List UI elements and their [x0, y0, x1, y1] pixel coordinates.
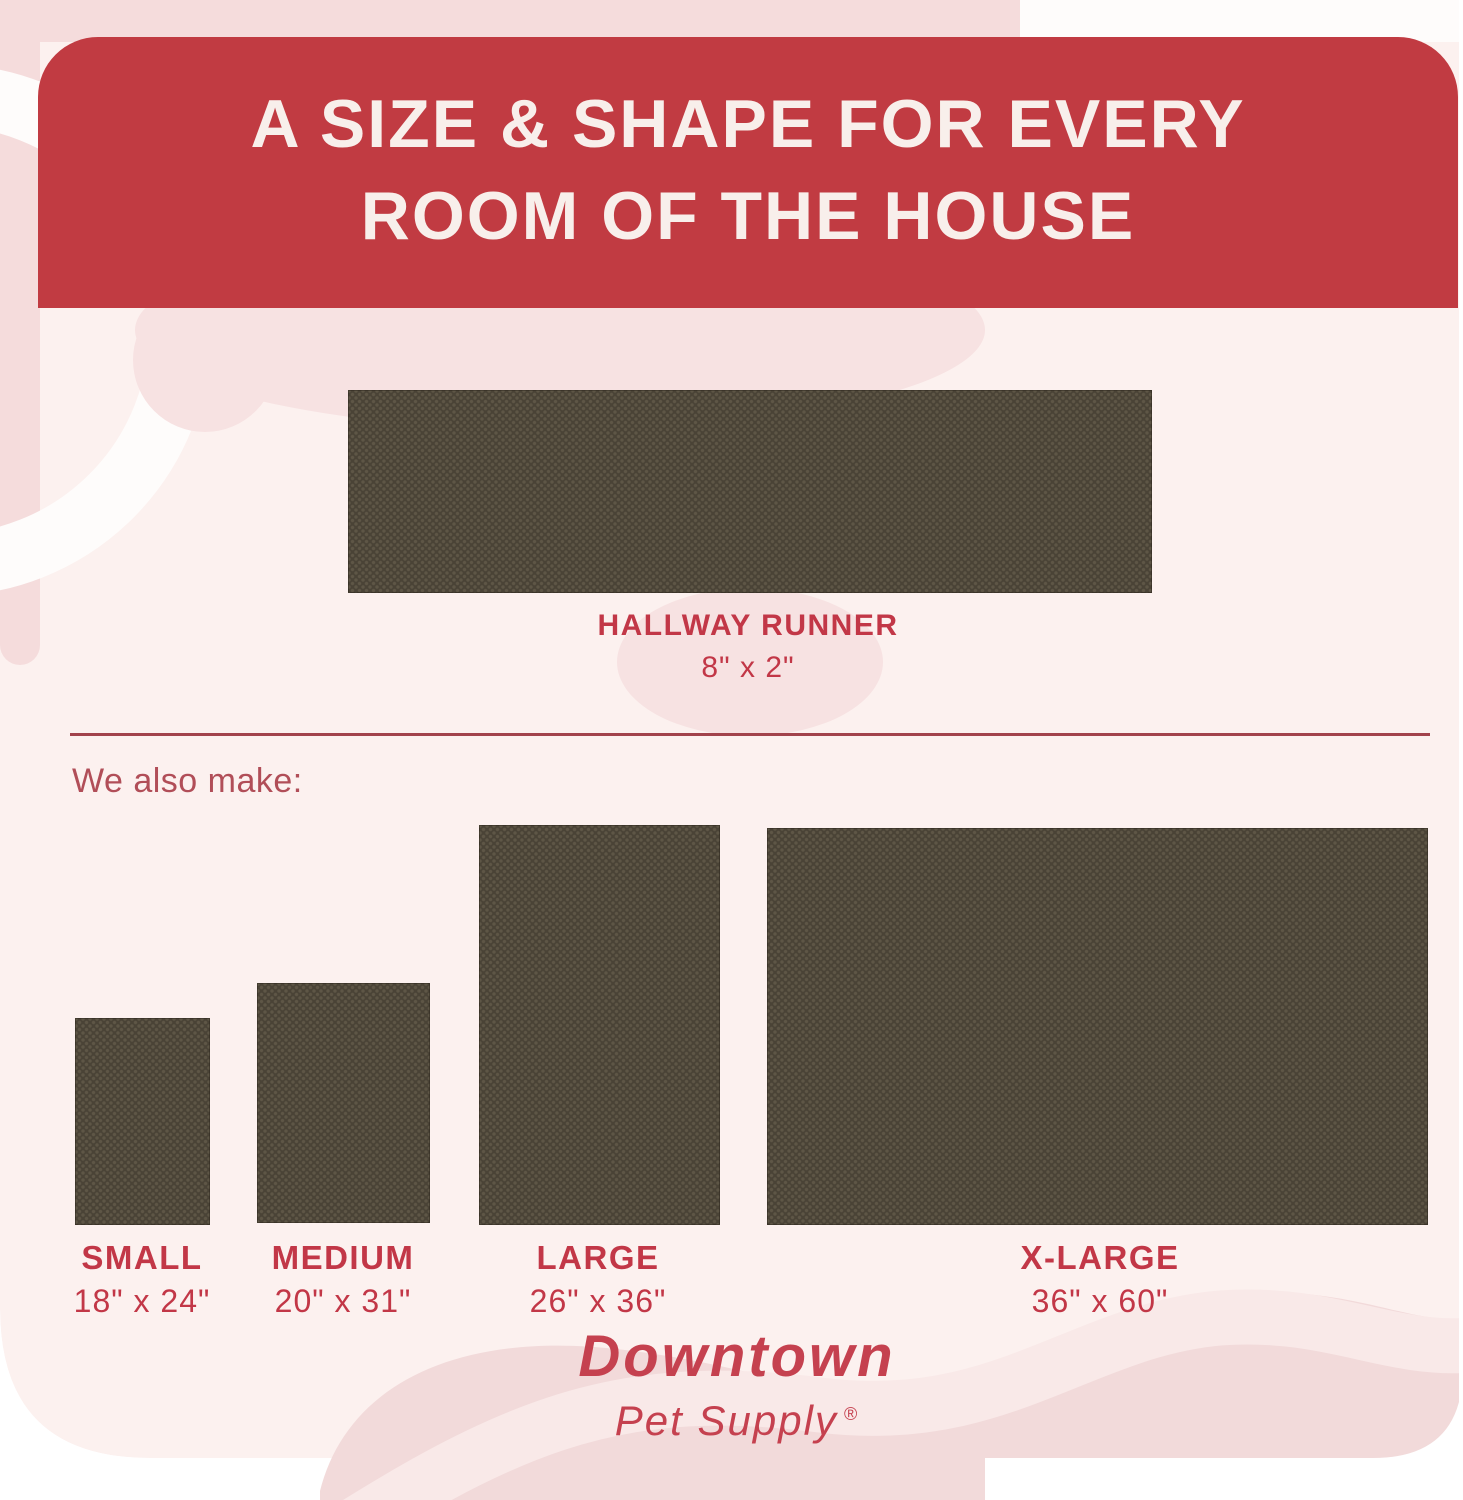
- xlarge-mat-swatch: [767, 828, 1428, 1225]
- registered-trademark-symbol: ®: [844, 1404, 859, 1424]
- size-label-xlarge: X-LARGE 36" x 60": [988, 1238, 1212, 1321]
- size-name-medium: MEDIUM: [231, 1238, 455, 1278]
- header-banner: A SIZE & SHAPE FOR EVERY ROOM OF THE HOU…: [38, 37, 1458, 308]
- size-name-large: LARGE: [486, 1238, 710, 1278]
- brand-logo: Downtown Pet Supply®: [437, 1326, 1037, 1445]
- size-dimensions-xlarge: 36" x 60": [988, 1281, 1212, 1321]
- runner-mat-swatch: [348, 390, 1152, 593]
- small-mat-swatch: [75, 1018, 210, 1225]
- size-dimensions-large: 26" x 36": [486, 1281, 710, 1321]
- brand-tagline-text: Pet Supply: [615, 1397, 838, 1444]
- size-dimensions-medium: 20" x 31": [231, 1281, 455, 1321]
- header-title-line1: A SIZE & SHAPE FOR EVERY: [250, 78, 1245, 170]
- size-dimensions-small: 18" x 24": [30, 1281, 254, 1321]
- header-title: A SIZE & SHAPE FOR EVERY ROOM OF THE HOU…: [250, 78, 1245, 262]
- size-label-small: SMALL 18" x 24": [30, 1238, 254, 1321]
- divider-line: [70, 733, 1430, 736]
- large-mat-swatch: [479, 825, 720, 1225]
- runner-dimensions: 8" x 2": [548, 648, 948, 688]
- brand-name: Downtown: [437, 1326, 1037, 1388]
- size-label-medium: MEDIUM 20" x 31": [231, 1238, 455, 1321]
- runner-name: HALLWAY RUNNER: [548, 606, 948, 646]
- also-make-text: We also make:: [72, 762, 303, 801]
- size-name-small: SMALL: [30, 1238, 254, 1278]
- runner-label: HALLWAY RUNNER 8" x 2": [548, 606, 948, 688]
- size-name-xlarge: X-LARGE: [988, 1238, 1212, 1278]
- header-title-line2: ROOM OF THE HOUSE: [250, 170, 1245, 262]
- medium-mat-swatch: [257, 983, 430, 1223]
- brand-tagline: Pet Supply®: [437, 1390, 1037, 1445]
- size-label-large: LARGE 26" x 36": [486, 1238, 710, 1321]
